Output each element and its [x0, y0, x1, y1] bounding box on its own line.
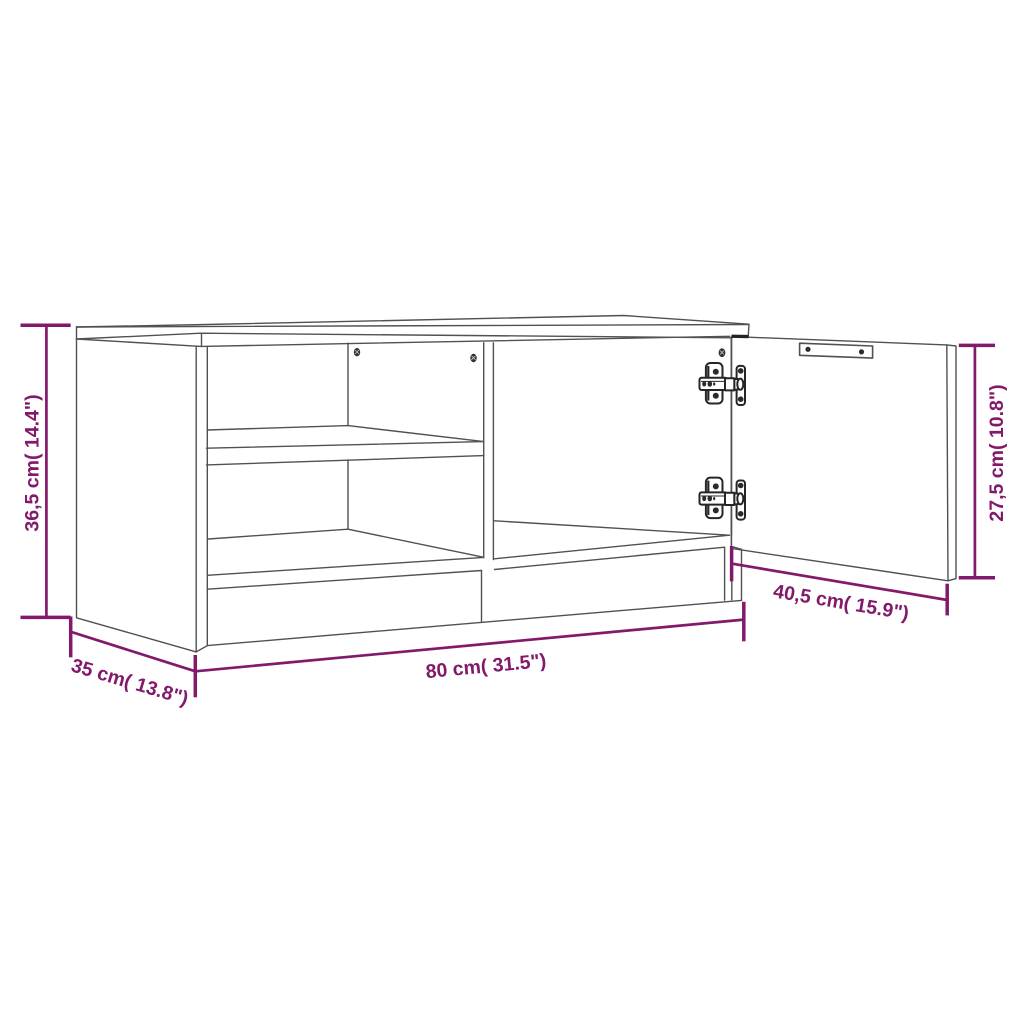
svg-text:36,5 cm( 14.4"): 36,5 cm( 14.4")	[22, 394, 44, 531]
svg-text:40,5 cm( 15.9"): 40,5 cm( 15.9")	[772, 580, 911, 625]
svg-text:27,5 cm( 10.8"): 27,5 cm( 10.8")	[986, 384, 1008, 521]
svg-text:80 cm( 31.5"): 80 cm( 31.5")	[425, 650, 547, 683]
